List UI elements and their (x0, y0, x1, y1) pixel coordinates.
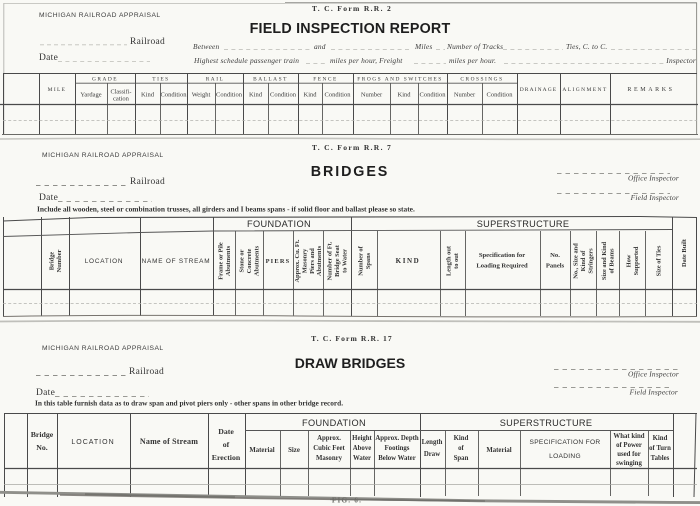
svg-text:Date: Date (218, 427, 234, 436)
svg-text:Condition: Condition (486, 92, 513, 99)
svg-text:ALIGNMENT: ALIGNMENT (562, 87, 607, 93)
svg-text:Panels: Panels (546, 263, 565, 270)
svg-text:No.: No. (36, 443, 48, 452)
svg-text:DRAW BRIDGES: DRAW BRIDGES (295, 355, 405, 371)
svg-text:MILE: MILE (48, 87, 67, 93)
svg-text:LOADING: LOADING (549, 453, 581, 460)
svg-text:SPECIFICATION FOR: SPECIFICATION FOR (530, 439, 601, 446)
svg-text:SUPERSTRUCTURE: SUPERSTRUCTURE (477, 219, 570, 229)
svg-text:of: of (223, 440, 230, 449)
svg-text:Yardage: Yardage (80, 92, 101, 99)
svg-text:Stringers: Stringers (588, 248, 595, 274)
svg-text:Date: Date (39, 193, 58, 203)
svg-text:FOUNDATION: FOUNDATION (247, 219, 311, 229)
svg-text:Abutments: Abutments (316, 245, 323, 276)
svg-text:Include all wooden, steel or c: Include all wooden, steel or combination… (37, 205, 415, 214)
svg-text:Masonry: Masonry (301, 248, 308, 273)
svg-text:Kind: Kind (653, 435, 668, 442)
svg-text:Piers and: Piers and (309, 248, 316, 274)
svg-text:Tables: Tables (651, 455, 670, 462)
svg-text:Size: Size (288, 447, 300, 454)
svg-text:How: How (625, 254, 632, 267)
svg-text:and: and (314, 42, 326, 51)
svg-text:of Power: of Power (616, 442, 642, 449)
svg-text:Number: Number (56, 249, 63, 272)
svg-text:Specification for: Specification for (479, 252, 525, 259)
svg-text:CROSSINGS: CROSSINGS (460, 77, 503, 83)
svg-text:SUPERSTRUCTURE: SUPERSTRUCTURE (500, 418, 593, 428)
svg-text:Kind: Kind (249, 92, 263, 99)
svg-text:to out: to out (453, 252, 460, 269)
svg-text:Kind: Kind (304, 92, 318, 99)
svg-text:Abutments: Abutments (225, 245, 232, 276)
svg-text:Date Built: Date Built (681, 238, 688, 267)
svg-text:LOCATION: LOCATION (71, 439, 114, 446)
svg-text:No.: No. (550, 252, 560, 259)
svg-text:BALLAST: BALLAST (253, 77, 288, 83)
svg-text:to Water: to Water (342, 249, 349, 273)
svg-text:Condition: Condition (324, 92, 351, 99)
svg-text:Weight: Weight (192, 92, 211, 99)
svg-text:No., Size and: No., Size and (573, 243, 580, 279)
svg-text:Erection: Erection (212, 453, 241, 462)
svg-text:Name of Stream: Name of Stream (140, 437, 198, 446)
svg-text:BRIDGES: BRIDGES (311, 164, 389, 180)
svg-text:Railroad: Railroad (129, 367, 164, 377)
svg-text:Length: Length (422, 439, 443, 446)
svg-text:miles per hour.: miles per hour. (449, 56, 496, 65)
svg-text:NAME OF STREAM: NAME OF STREAM (142, 258, 211, 265)
svg-text:Masonry: Masonry (316, 455, 343, 462)
svg-text:miles per hour, Freight: miles per hour, Freight (330, 56, 403, 65)
svg-text:DRAINAGE: DRAINAGE (520, 87, 558, 93)
svg-text:Number of Tracks: Number of Tracks (446, 42, 503, 51)
svg-text:Water: Water (353, 455, 371, 462)
svg-text:PIERS: PIERS (266, 258, 291, 265)
svg-text:Miles: Miles (414, 42, 432, 51)
svg-text:FROGS AND SWITCHES: FROGS AND SWITCHES (357, 77, 442, 83)
svg-text:of Beams: of Beams (608, 248, 615, 274)
svg-text:RAIL: RAIL (206, 77, 225, 83)
svg-text:used for: used for (617, 451, 641, 458)
svg-text:Loading Required: Loading Required (476, 263, 528, 270)
svg-text:Kind: Kind (454, 435, 469, 442)
svg-text:Bridge: Bridge (48, 252, 55, 271)
svg-text:Kind: Kind (398, 92, 412, 99)
svg-text:Approx. Cu. Ft.: Approx. Cu. Ft. (294, 239, 301, 282)
svg-text:Kind of: Kind of (580, 250, 587, 272)
svg-text:swinging: swinging (616, 460, 642, 467)
svg-text:Stone or: Stone or (239, 249, 246, 272)
svg-text:of: of (458, 445, 464, 452)
svg-text:Date: Date (36, 388, 55, 398)
svg-text:Length out: Length out (445, 245, 452, 276)
svg-text:Date: Date (39, 53, 58, 63)
svg-text:Approx.: Approx. (317, 435, 341, 442)
svg-text:Concrete: Concrete (246, 248, 253, 273)
svg-text:Office Inspector: Office Inspector (628, 174, 679, 183)
svg-text:Railroad: Railroad (130, 37, 165, 47)
svg-text:Classifi-: Classifi- (111, 89, 132, 96)
svg-text:Condition: Condition (419, 92, 446, 99)
svg-text:T. C. Form R.R. 17: T. C. Form R.R. 17 (311, 334, 393, 343)
svg-text:Field Inspector: Field Inspector (630, 193, 679, 202)
svg-text:Above: Above (353, 445, 372, 452)
svg-text:KIND: KIND (396, 257, 421, 265)
svg-text:Field Inspector: Field Inspector (629, 388, 678, 397)
svg-text:Material: Material (486, 447, 511, 454)
svg-text:T. C. Form R.R. 7: T. C. Form R.R. 7 (312, 143, 392, 152)
svg-text:Number: Number (454, 92, 476, 99)
svg-text:Draw: Draw (424, 451, 440, 458)
svg-text:Condition: Condition (160, 92, 187, 99)
svg-text:Number of Ft.: Number of Ft. (327, 241, 334, 280)
svg-text:Approx. Depth: Approx. Depth (375, 435, 419, 442)
svg-text:LOCATION: LOCATION (85, 258, 124, 265)
svg-text:T. C. Form R.R. 2: T. C. Form R.R. 2 (312, 4, 392, 13)
svg-text:Size of Ties: Size of Ties (656, 245, 663, 276)
svg-text:Highest schedule passenger tra: Highest schedule passenger train (193, 56, 299, 65)
svg-text:Railroad: Railroad (130, 177, 165, 187)
svg-text:Spans: Spans (365, 252, 372, 269)
svg-text:Between: Between (193, 42, 220, 51)
svg-text:GRADE: GRADE (92, 77, 118, 83)
svg-text:FIG. 6.: FIG. 6. (332, 497, 362, 505)
svg-text:MICHIGAN RAILROAD APPRAISAL: MICHIGAN RAILROAD APPRAISAL (42, 152, 164, 159)
svg-text:Inspector: Inspector (665, 56, 696, 65)
svg-text:Span: Span (454, 455, 469, 462)
svg-text:cation: cation (113, 96, 130, 103)
svg-text:Material: Material (249, 447, 274, 454)
svg-text:Frame or Pile: Frame or Pile (217, 242, 224, 280)
svg-text:TIES: TIES (152, 77, 169, 83)
svg-text:What kind: What kind (613, 433, 644, 440)
svg-text:REMARKS: REMARKS (627, 87, 674, 93)
svg-text:Footings: Footings (385, 445, 410, 452)
svg-text:FOUNDATION: FOUNDATION (302, 418, 366, 428)
svg-text:of Turn: of Turn (649, 445, 671, 452)
svg-text:Bridge: Bridge (31, 430, 54, 439)
svg-text:FENCE: FENCE (313, 77, 338, 83)
svg-text:MICHIGAN RAILROAD APPRAISAL: MICHIGAN RAILROAD APPRAISAL (42, 345, 164, 352)
svg-text:Height: Height (352, 435, 372, 442)
svg-text:Cubic Feet: Cubic Feet (313, 445, 345, 452)
svg-text:Kind: Kind (141, 92, 155, 99)
svg-text:Condition: Condition (270, 92, 297, 99)
svg-text:Office Inspector: Office Inspector (628, 370, 679, 379)
svg-text:FIELD INSPECTION REPORT: FIELD INSPECTION REPORT (250, 21, 451, 37)
svg-text:MICHIGAN RAILROAD APPRAISAL: MICHIGAN RAILROAD APPRAISAL (39, 12, 161, 19)
svg-text:Ties, C. to C.: Ties, C. to C. (566, 42, 607, 51)
svg-text:In this table furnish data as: In this table furnish data as to draw sp… (35, 399, 343, 408)
svg-text:Condition: Condition (216, 92, 243, 99)
svg-text:Size and Kind: Size and Kind (601, 241, 608, 280)
svg-text:Supported: Supported (633, 246, 640, 275)
svg-text:Abutments: Abutments (254, 245, 261, 276)
svg-text:Number: Number (361, 92, 383, 99)
svg-text:Bridge Seat: Bridge Seat (334, 244, 341, 277)
svg-text:Number of: Number of (357, 245, 364, 275)
svg-text:Below Water: Below Water (378, 455, 415, 462)
